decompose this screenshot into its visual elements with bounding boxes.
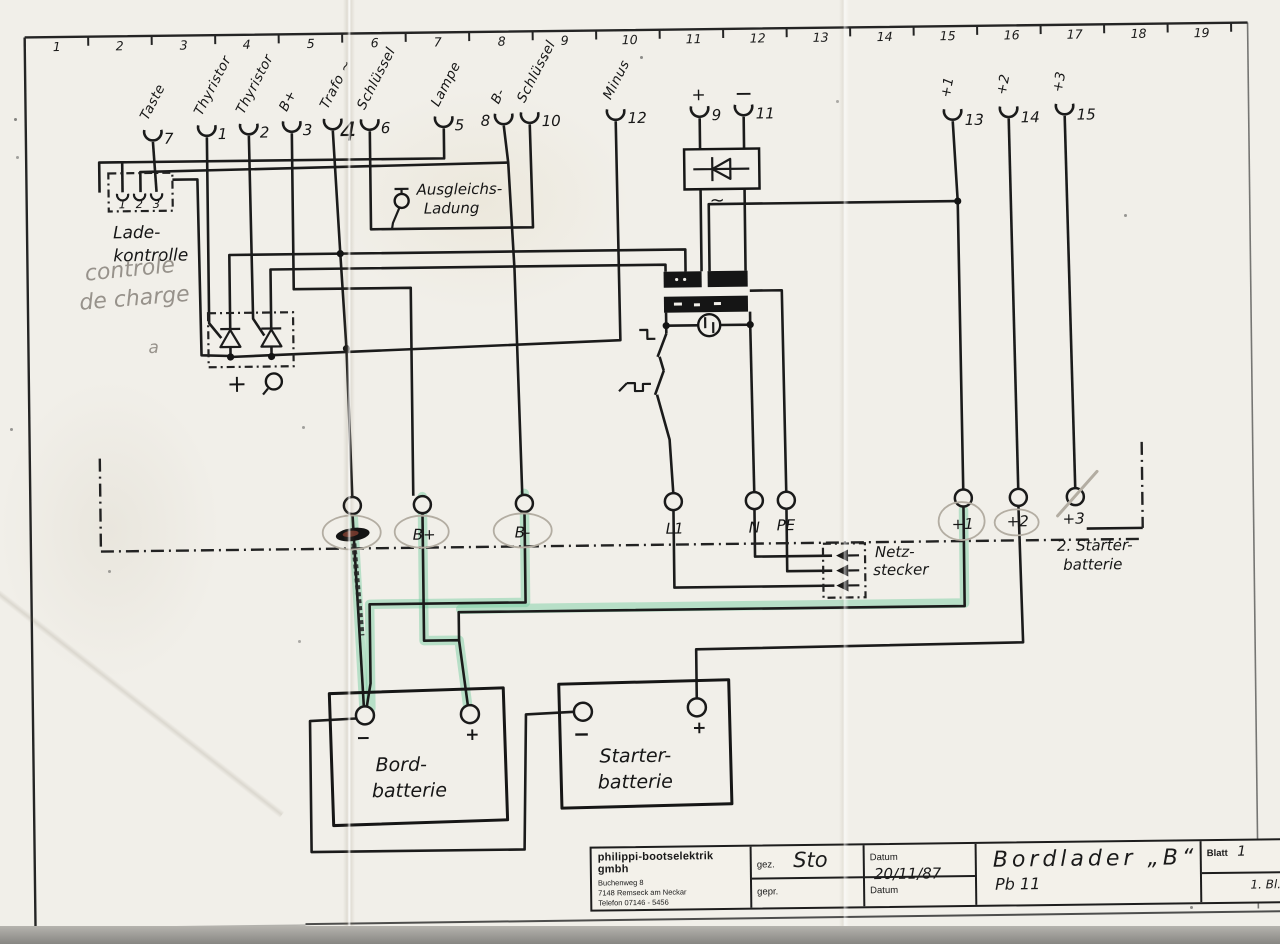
pencil-annotations (322, 471, 1098, 549)
ruler-number: 7 (434, 34, 442, 49)
blatt-label: Blatt (1207, 848, 1228, 859)
terminal-label: Lampe (428, 59, 464, 109)
schematic-content: 1 2 3 4 5 6 7 8 9 10 11 12 13 14 15 16 1… (0, 0, 1280, 944)
terminal-label: Minus (600, 57, 634, 102)
drawing-number: Pb 11 (995, 872, 1200, 894)
starter-battery-label-1: Starter- (599, 745, 671, 768)
thyristor-plus-label: + (227, 370, 247, 398)
terminal-label: Taste (137, 82, 169, 123)
ruler-number: 17 (1067, 27, 1083, 42)
terminal-number: 14 (1021, 108, 1040, 126)
terminal-number: 4 (340, 117, 357, 147)
ruler-number: 19 (1194, 25, 1210, 40)
labels: Taste Thyristor Thyristor B+ Trafo ~ Sch… (75, 31, 1135, 806)
pencil-note-3: a (148, 338, 159, 358)
ruler-number: 9 (561, 33, 569, 48)
bottom-label-n: N (749, 519, 760, 537)
terminal-number: 7 (164, 130, 174, 148)
date-cell: Datum 20/11/87 Datum (865, 844, 978, 906)
ruler-number: 13 (813, 30, 829, 45)
terminal-l1 (665, 493, 682, 510)
netzstecker-label-2: stecker (873, 560, 929, 579)
sheet-cell: Blatt 1 1. Bl. (1202, 840, 1280, 902)
bottom-label-l1: L1 (666, 519, 684, 537)
lk-terminal-1: 1 (119, 197, 126, 211)
bord-plus-sign: + (465, 725, 479, 745)
drawn-by-cell: gez. Sto gepr. (752, 845, 866, 907)
ausgleich-label-1: Ausgleichs- (415, 180, 502, 199)
terminal-label: +3 (1050, 70, 1070, 94)
title-block: philippi-bootselektrik gmbh Buchenweg 8 … (590, 838, 1280, 911)
gepr-label: gepr. (757, 886, 778, 897)
terminal-number: 13 (965, 111, 984, 129)
highlighter-traces (352, 488, 966, 708)
bord-plus-terminal (461, 705, 479, 723)
terminal-number: 5 (455, 116, 465, 134)
bottom-label-plus2: +2 (1007, 512, 1029, 530)
schematic-drawing: 1 2 3 4 5 6 7 8 9 10 11 12 13 14 15 16 1… (0, 0, 1280, 944)
drawing-title: Bordlader „B“ (993, 845, 1200, 873)
terminal-scribbled (344, 497, 361, 514)
minus-circle-symbol (266, 373, 282, 389)
components (108, 101, 1088, 829)
ruler-number: 14 (877, 29, 893, 44)
starter-minus-sign: − (573, 722, 590, 746)
drawing-title-cell: Bordlader „B“ Pb 11 (977, 841, 1203, 905)
company-name: philippi-bootselektrik gmbh (598, 850, 744, 876)
terminal-number: 8 (481, 112, 491, 130)
pencil-note-2: de charge (78, 282, 190, 316)
ruler-number: 15 (940, 28, 956, 43)
lamp-symbol (698, 314, 720, 336)
terminal-number: 3 (303, 121, 313, 139)
terminal-number: 9 (712, 106, 722, 124)
terminal-n (746, 492, 763, 509)
ruler-number: 16 (1004, 27, 1020, 42)
terminal-plus1 (955, 489, 972, 506)
bord-battery-label-2: batterie (372, 779, 447, 802)
datum-label-2: Datum (870, 885, 898, 896)
ruler-number: 11 (686, 31, 702, 46)
datum-label-1: Datum (870, 852, 898, 863)
scanner-edge-band (0, 926, 1280, 944)
lk-label-1: Lade- (113, 223, 161, 244)
gez-label: gez. (757, 859, 775, 870)
transformer (664, 271, 748, 313)
terminal-number: 1 (218, 125, 228, 143)
ruler-number: 5 (307, 36, 315, 51)
terminal-number: 12 (628, 109, 647, 127)
rectifier-block (684, 149, 759, 190)
terminal-label: Schlüssel (354, 45, 399, 112)
terminal-label: Thyristor (233, 51, 277, 117)
terminal-label: B- (488, 86, 509, 107)
terminal-bplus (414, 496, 431, 513)
starter-plus-terminal (688, 698, 706, 716)
ausgleich-link-symbol (395, 194, 409, 208)
lk-terminal-2: 2 (136, 197, 143, 211)
terminal-label: +1 (938, 75, 958, 99)
starter-battery-label-2: batterie (598, 771, 673, 794)
ruler-number: 8 (498, 34, 506, 49)
ruler-number: 4 (243, 37, 251, 52)
terminal-bminus (516, 495, 533, 512)
ruler-number: 12 (750, 30, 766, 45)
bottom-label-bminus: B- (515, 523, 531, 541)
terminal-label: Schlüssel (514, 38, 559, 105)
terminal-pe (778, 492, 795, 509)
ruler-number: 2 (116, 38, 124, 53)
terminal-label: Thyristor (191, 52, 235, 118)
blatt-value: 1 (1237, 844, 1246, 860)
minus-circle-tail (263, 389, 268, 395)
gez-value: Sto (793, 848, 828, 872)
terminal-number: 10 (542, 112, 561, 130)
ruler-number: 10 (622, 32, 638, 47)
ruler-number: 3 (180, 37, 188, 52)
terminal-number: 15 (1077, 105, 1096, 123)
paper-specks (14, 118, 17, 121)
wiring (99, 112, 1147, 855)
bottom-label-plus3: +3 (1062, 510, 1084, 528)
terminal-label: +2 (994, 73, 1014, 97)
terminal-number: 11 (756, 104, 775, 122)
ruler-number: 6 (371, 35, 379, 50)
second-starter-label-2: batterie (1063, 555, 1122, 574)
rectifier-ac-label: ~ (710, 190, 725, 211)
bottom-label-pe: PE (777, 516, 796, 534)
bottom-label-bplus: B+ (413, 526, 436, 544)
terminal-number: 6 (381, 119, 391, 137)
starter-minus-terminal (574, 703, 592, 721)
company-cell: philippi-bootselektrik gmbh Buchenweg 8 … (592, 847, 753, 910)
starter-plus-sign: + (692, 718, 706, 738)
terminal-label-plus: + (691, 85, 705, 105)
ruler-number: 1 (53, 39, 61, 54)
scanned-schematic-page: 1 2 3 4 5 6 7 8 9 10 11 12 13 14 15 16 1… (0, 0, 1280, 944)
netzstecker-label-1: Netz- (875, 543, 915, 561)
bord-minus-sign: − (356, 728, 370, 748)
bottom-label-plus1: +1 (952, 515, 974, 533)
ruler-number: 18 (1131, 26, 1147, 41)
lk-terminal-3: 3 (153, 197, 160, 211)
ausgleich-label-2: Ladung (424, 199, 480, 218)
terminal-label-minus: − (734, 82, 753, 107)
terminal-label: B+ (276, 88, 300, 115)
pencil-note-1: controle (84, 253, 176, 287)
bord-battery-label-1: Bord- (375, 754, 427, 777)
terminal-plus2 (1010, 489, 1027, 506)
sheet-note: 1. Bl. (1250, 877, 1280, 891)
bord-minus-terminal (356, 706, 374, 724)
terminal-label: Trafo ~ (317, 57, 356, 112)
enclosure-boundary (100, 442, 1143, 552)
terminal-number: 2 (260, 124, 270, 142)
company-address-3: Telefon 07146 - 5456 (598, 896, 744, 908)
second-starter-label-1: 2. Starter- (1057, 536, 1133, 555)
